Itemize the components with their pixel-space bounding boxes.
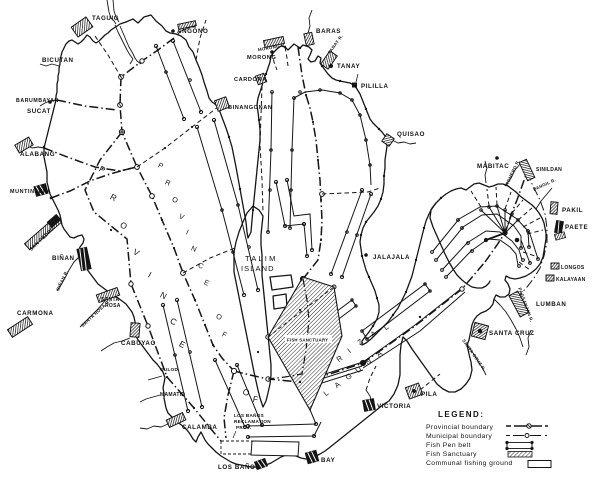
svg-text:Provincial boundary: Provincial boundary [426,424,493,431]
svg-text:LUMBAN: LUMBAN [536,301,566,308]
svg-text:SINILDAN: SINILDAN [536,167,562,173]
svg-text:MUNTINLUPA: MUNTINLUPA [10,189,51,195]
svg-text:PAETE: PAETE [565,224,588,231]
svg-text:ISLAND: ISLAND [241,264,275,273]
svg-text:MAMATID: MAMATID [160,392,185,398]
svg-text:MABITAC: MABITAC [477,163,509,170]
svg-text:BINANGONAN: BINANGONAN [228,105,273,111]
svg-text:Communal fishing ground: Communal fishing ground [426,460,513,467]
svg-text:LOS BAÑOS: LOS BAÑOS [218,464,260,471]
svg-text:TANAY: TANAY [337,63,361,70]
svg-text:CARDONA: CARDONA [234,77,267,83]
svg-text:PILILLA: PILILLA [361,83,389,90]
svg-text:BIÑAN: BIÑAN [52,255,75,262]
svg-text:ANGONO: ANGONO [177,28,208,35]
svg-text:ALABANG: ALABANG [20,151,55,158]
svg-text:Fish Pen belt: Fish Pen belt [426,442,471,449]
svg-text:KALAYAAN: KALAYAAN [556,277,586,283]
svg-text:Municipal boundary: Municipal boundary [426,433,492,440]
svg-text:BARAS: BARAS [316,28,341,35]
svg-text:TAGUIG: TAGUIG [92,15,119,22]
svg-text:LOS BAÑOS: LOS BAÑOS [234,412,264,418]
svg-text:PAKIL: PAKIL [562,207,583,214]
svg-text:RECLAMATION: RECLAMATION [234,419,271,424]
svg-text:SUCAT: SUCAT [27,108,51,115]
svg-text:MORONG: MORONG [247,55,276,61]
svg-text:Fish Sanctuary: Fish Sanctuary [426,451,477,458]
svg-text:PROJ.: PROJ. [236,425,251,430]
svg-text:VICTORIA: VICTORIA [377,403,411,410]
svg-text:LONGOS: LONGOS [561,265,585,271]
svg-text:GULOD: GULOD [160,367,178,372]
svg-text:JALAJALA: JALAJALA [373,254,410,261]
svg-text:SANTA CRUZ: SANTA CRUZ [489,330,535,337]
svg-text:TALIM: TALIM [245,254,278,263]
svg-text:QUISAO: QUISAO [397,131,425,138]
svg-text:CALAMBA: CALAMBA [182,424,217,431]
svg-text:BARUMBAYAN: BARUMBAYAN [16,98,59,104]
svg-text:ROSA: ROSA [105,303,121,309]
svg-text:BICUTAN: BICUTAN [42,57,74,64]
svg-text:CARMONA: CARMONA [17,310,54,317]
svg-text:CABUYAO: CABUYAO [121,340,156,347]
svg-text:LEGEND:: LEGEND: [438,410,485,419]
svg-text:PILA: PILA [421,391,438,398]
svg-text:BAY: BAY [321,457,336,464]
svg-text:FISH SANCTUARY: FISH SANCTUARY [287,338,328,343]
